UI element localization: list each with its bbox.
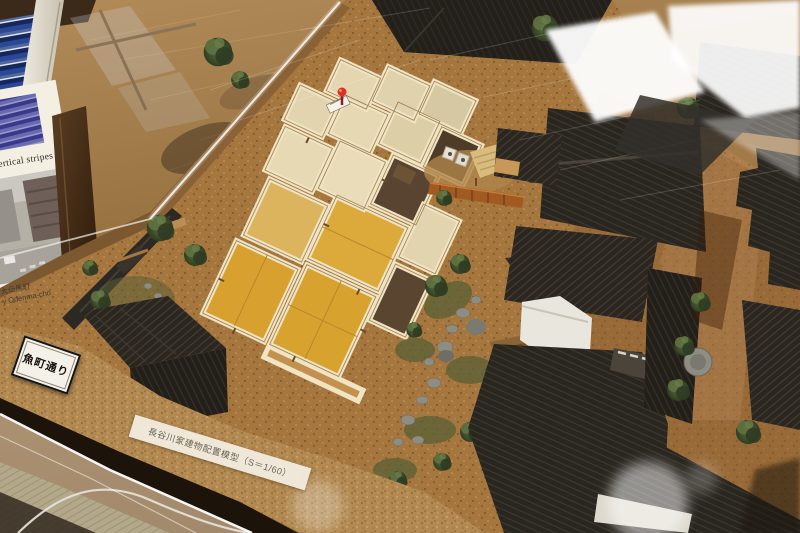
pin-head bbox=[338, 88, 347, 97]
pin-highlight bbox=[339, 89, 342, 92]
small-west-roof bbox=[494, 128, 562, 186]
museum-display-photo: 魚町通り 長谷川家建物配置模型（S＝1/60） vertical stripes… bbox=[0, 0, 800, 533]
light-flare3 bbox=[686, 462, 718, 494]
street-name-text: 魚町通り bbox=[21, 350, 72, 381]
stone-ring-inner bbox=[690, 354, 706, 370]
scene bbox=[0, 0, 800, 533]
garden-rock bbox=[466, 319, 486, 335]
well-hole2 bbox=[461, 158, 465, 162]
garden-rock2 bbox=[438, 350, 454, 362]
well-hole bbox=[448, 152, 452, 156]
